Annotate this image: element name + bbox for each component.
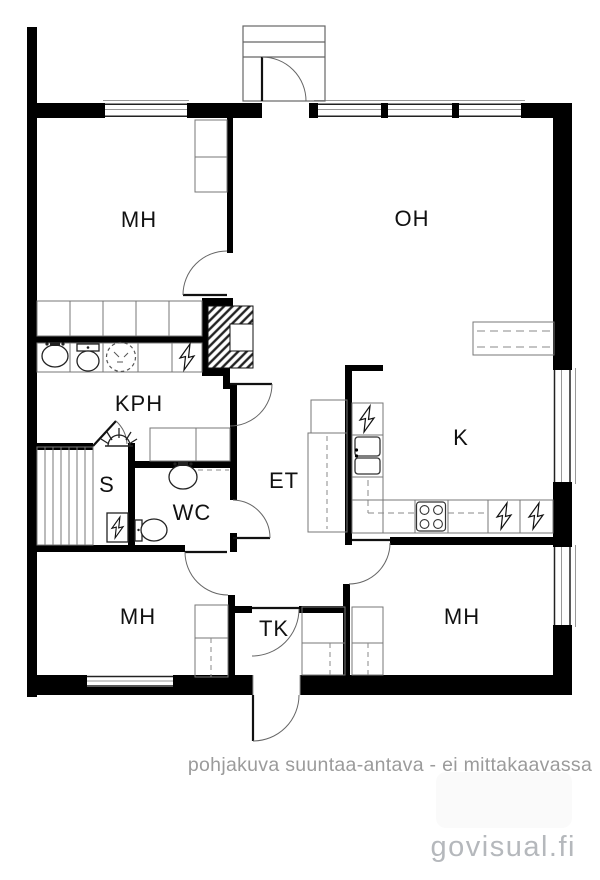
- watermark-text: govisual.fi: [431, 831, 576, 863]
- window: [87, 677, 173, 687]
- room-label-mh-bottom-right: MH: [444, 604, 480, 629]
- room-label-vestibule: TK: [259, 616, 289, 641]
- room-label-kph: KPH: [115, 391, 163, 416]
- floor-plan-drawing: MH OH KPH S WC ET K MH TK MH pohjakuva s…: [0, 0, 600, 880]
- wardrobe: [352, 607, 383, 675]
- room-label-wc: WC: [173, 500, 212, 525]
- room-label-kitchen: K: [453, 425, 469, 450]
- hall-closets: [308, 400, 347, 532]
- wardrobe: [195, 120, 227, 192]
- window: [103, 101, 189, 117]
- lightning-icon: [360, 406, 374, 432]
- toilet-icon: [135, 519, 167, 541]
- front-door: [262, 57, 306, 101]
- room-label-mh-bottom-left: MH: [120, 604, 156, 629]
- door-vestibule-exterior: [253, 675, 300, 741]
- room-label-sauna: S: [99, 472, 115, 497]
- door-wc: [233, 500, 270, 538]
- interior-walls: [31, 118, 556, 677]
- kph-dresser: [150, 428, 230, 461]
- disclaimer-caption: pohjakuva suuntaa-antava - ei mittakaava…: [188, 754, 592, 776]
- stove-icon: [417, 502, 446, 531]
- fireplace: [208, 306, 253, 368]
- wardrobe: [195, 605, 228, 677]
- floor-plan-page: MH OH KPH S WC ET K MH TK MH pohjakuva s…: [0, 0, 600, 880]
- door-mh-top: [183, 251, 227, 295]
- window: [555, 368, 576, 484]
- sauna-stove-icon: [107, 513, 128, 542]
- window: [314, 101, 525, 117]
- sideboard: [473, 322, 554, 355]
- washing-machine-icon: [107, 343, 136, 372]
- door-mh-bottom-left: [185, 552, 228, 595]
- sink-icon: [355, 437, 380, 474]
- lightning-icon: [497, 503, 511, 529]
- sauna-bench-icon: [37, 447, 93, 545]
- kitchen-fixtures: [352, 403, 553, 533]
- room-labels: MH OH KPH S WC ET K MH TK MH: [99, 206, 480, 641]
- door-mh-bottom-right: [349, 540, 390, 584]
- wardrobe: [302, 607, 345, 675]
- window: [555, 545, 576, 627]
- toilet-icon: [77, 344, 99, 371]
- room-label-hall: ET: [269, 468, 299, 493]
- room-label-oh: OH: [395, 206, 430, 231]
- lightning-icon: [180, 344, 194, 370]
- kph-fixtures: [37, 342, 202, 372]
- exterior-walls: [27, 27, 572, 697]
- door-sauna: [93, 421, 127, 446]
- closet-row: [37, 301, 202, 336]
- entrance-porch: [243, 26, 325, 101]
- lightning-icon: [529, 503, 543, 529]
- washbasin-icon: [42, 342, 68, 367]
- room-label-mh-top: MH: [121, 207, 157, 232]
- watermark-logo-shape: [436, 772, 572, 828]
